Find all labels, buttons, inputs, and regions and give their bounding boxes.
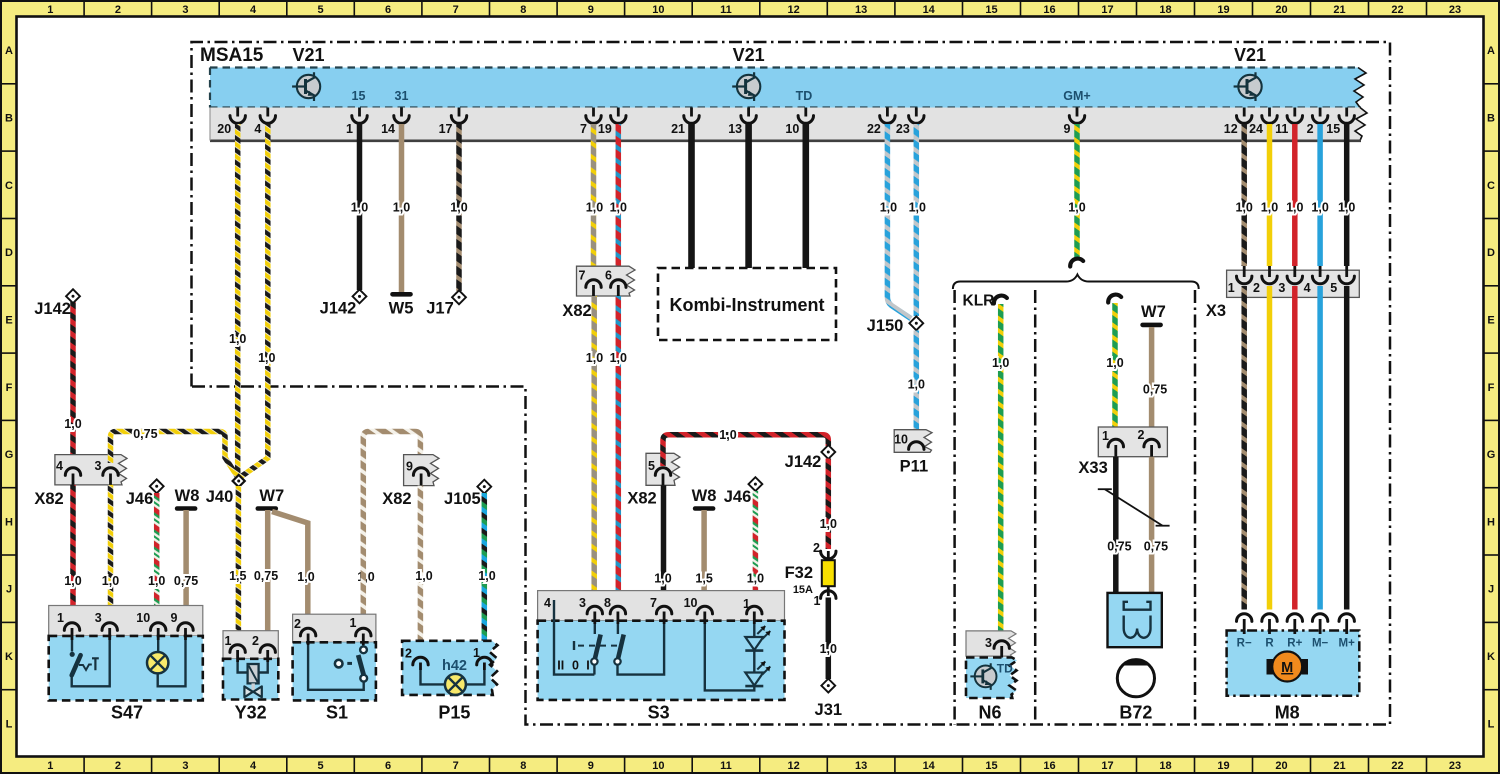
svg-text:J142: J142 xyxy=(785,453,822,471)
svg-text:18: 18 xyxy=(1159,4,1171,16)
svg-text:10: 10 xyxy=(652,760,664,772)
svg-text:16: 16 xyxy=(1043,760,1055,772)
svg-text:14: 14 xyxy=(381,122,395,136)
svg-text:X82: X82 xyxy=(627,490,656,508)
svg-text:1,0: 1,0 xyxy=(1236,201,1253,215)
svg-text:J: J xyxy=(6,584,12,596)
svg-text:TD: TD xyxy=(796,89,813,103)
svg-text:13: 13 xyxy=(855,760,867,772)
svg-text:B: B xyxy=(1487,113,1495,125)
svg-text:S47: S47 xyxy=(111,703,143,723)
svg-text:5: 5 xyxy=(318,760,324,772)
svg-text:J46: J46 xyxy=(724,488,752,506)
svg-text:1: 1 xyxy=(47,4,53,16)
svg-text:22: 22 xyxy=(1391,4,1403,16)
svg-text:J142: J142 xyxy=(320,300,357,318)
svg-text:MSA15: MSA15 xyxy=(200,45,264,66)
svg-text:11: 11 xyxy=(720,4,732,16)
svg-text:20: 20 xyxy=(1275,760,1287,772)
svg-text:1,0: 1,0 xyxy=(1311,201,1328,215)
svg-text:J142: J142 xyxy=(34,300,71,318)
svg-text:W8: W8 xyxy=(692,487,717,505)
svg-text:S3: S3 xyxy=(648,703,670,723)
svg-text:V21: V21 xyxy=(733,45,765,65)
svg-text:R: R xyxy=(1265,638,1274,650)
svg-text:5: 5 xyxy=(1330,281,1337,295)
svg-text:1,0: 1,0 xyxy=(880,201,897,215)
svg-text:10: 10 xyxy=(684,596,698,610)
svg-text:18: 18 xyxy=(1159,760,1171,772)
svg-text:C: C xyxy=(5,180,13,192)
svg-text:B72: B72 xyxy=(1119,703,1152,723)
svg-text:1,0: 1,0 xyxy=(586,351,603,365)
svg-text:1: 1 xyxy=(346,122,353,136)
svg-text:23: 23 xyxy=(896,122,910,136)
svg-text:B: B xyxy=(5,113,13,125)
svg-text:1: 1 xyxy=(350,616,357,630)
svg-text:J46: J46 xyxy=(126,490,154,508)
svg-text:h42: h42 xyxy=(442,658,467,674)
svg-text:I: I xyxy=(586,659,589,673)
svg-text:1,0: 1,0 xyxy=(1286,201,1303,215)
svg-text:P11: P11 xyxy=(900,458,928,476)
svg-text:W8: W8 xyxy=(175,487,200,505)
svg-text:19: 19 xyxy=(1217,760,1229,772)
svg-text:8: 8 xyxy=(520,4,526,16)
svg-text:3: 3 xyxy=(985,636,992,650)
svg-text:1: 1 xyxy=(57,611,64,625)
svg-text:12: 12 xyxy=(787,4,799,16)
svg-text:1,0: 1,0 xyxy=(229,332,246,346)
svg-text:1,0: 1,0 xyxy=(393,201,410,215)
svg-text:7: 7 xyxy=(453,760,459,772)
svg-text:0,75: 0,75 xyxy=(1107,540,1131,554)
svg-text:9: 9 xyxy=(588,4,594,16)
svg-text:7: 7 xyxy=(579,269,586,283)
svg-text:19: 19 xyxy=(1217,4,1229,16)
svg-text:1,0: 1,0 xyxy=(820,642,837,656)
svg-text:0,75: 0,75 xyxy=(1144,540,1168,554)
svg-text:4: 4 xyxy=(250,760,257,772)
svg-text:X3: X3 xyxy=(1206,302,1226,320)
svg-text:W5: W5 xyxy=(389,300,414,318)
svg-text:2: 2 xyxy=(813,541,820,555)
svg-text:1,0: 1,0 xyxy=(992,356,1009,370)
svg-text:10: 10 xyxy=(894,433,908,447)
svg-text:4: 4 xyxy=(1304,281,1311,295)
svg-text:3: 3 xyxy=(1278,281,1285,295)
svg-text:14: 14 xyxy=(923,760,936,772)
svg-text:E: E xyxy=(5,314,12,326)
svg-text:15: 15 xyxy=(985,4,997,16)
svg-text:17: 17 xyxy=(439,122,453,136)
svg-text:3: 3 xyxy=(579,596,586,610)
svg-text:0,75: 0,75 xyxy=(133,427,157,441)
svg-text:2: 2 xyxy=(294,617,301,631)
svg-text:9: 9 xyxy=(1064,122,1071,136)
svg-text:9: 9 xyxy=(171,611,178,625)
svg-text:3: 3 xyxy=(182,760,188,772)
svg-text:14: 14 xyxy=(923,4,936,16)
svg-text:W7: W7 xyxy=(259,487,284,505)
svg-text:22: 22 xyxy=(867,122,881,136)
svg-text:D: D xyxy=(5,247,13,259)
svg-text:23: 23 xyxy=(1449,4,1461,16)
svg-text:17: 17 xyxy=(1101,760,1113,772)
svg-text:19: 19 xyxy=(598,122,612,136)
svg-text:0,75: 0,75 xyxy=(254,569,278,583)
svg-text:15: 15 xyxy=(1326,122,1340,136)
svg-text:22: 22 xyxy=(1391,760,1403,772)
svg-text:4: 4 xyxy=(544,596,551,610)
svg-text:KLR: KLR xyxy=(963,293,995,310)
svg-text:X33: X33 xyxy=(1078,459,1107,477)
svg-text:F: F xyxy=(1488,382,1495,394)
svg-text:21: 21 xyxy=(1333,4,1345,16)
svg-text:11: 11 xyxy=(1275,122,1288,136)
svg-text:7: 7 xyxy=(580,122,587,136)
svg-text:J17: J17 xyxy=(426,300,454,318)
svg-text:L: L xyxy=(1488,718,1495,730)
svg-text:1,0: 1,0 xyxy=(610,201,627,215)
svg-text:0: 0 xyxy=(572,659,579,673)
svg-text:1: 1 xyxy=(743,597,750,611)
svg-text:1,0: 1,0 xyxy=(415,569,432,583)
svg-text:K: K xyxy=(1487,651,1495,663)
svg-text:21: 21 xyxy=(1333,760,1345,772)
svg-text:2: 2 xyxy=(252,634,259,648)
svg-text:J105: J105 xyxy=(444,490,481,508)
svg-text:1,0: 1,0 xyxy=(1338,201,1355,215)
svg-text:V21: V21 xyxy=(292,45,324,65)
svg-text:1,0: 1,0 xyxy=(102,574,119,588)
svg-text:15A: 15A xyxy=(793,584,813,596)
svg-text:10: 10 xyxy=(136,611,150,625)
svg-text:23: 23 xyxy=(1449,760,1461,772)
svg-text:1,0: 1,0 xyxy=(1106,356,1123,370)
svg-text:20: 20 xyxy=(1275,4,1287,16)
svg-text:1,0: 1,0 xyxy=(64,417,81,431)
svg-text:A: A xyxy=(1487,45,1495,57)
svg-text:1,0: 1,0 xyxy=(478,569,495,583)
svg-text:31: 31 xyxy=(395,89,409,103)
svg-text:9: 9 xyxy=(588,760,594,772)
svg-text:1,0: 1,0 xyxy=(909,201,926,215)
svg-text:J31: J31 xyxy=(815,701,843,719)
svg-text:1,0: 1,0 xyxy=(1261,201,1278,215)
svg-text:H: H xyxy=(5,516,13,528)
svg-text:D: D xyxy=(1487,247,1495,259)
svg-text:20: 20 xyxy=(217,122,231,136)
svg-text:R−: R− xyxy=(1237,638,1252,650)
svg-text:2: 2 xyxy=(115,760,121,772)
svg-text:1,0: 1,0 xyxy=(1068,201,1085,215)
svg-text:2: 2 xyxy=(115,4,121,16)
svg-text:11: 11 xyxy=(720,760,732,772)
svg-text:6: 6 xyxy=(605,269,612,283)
svg-text:E: E xyxy=(1487,314,1494,326)
svg-text:9: 9 xyxy=(406,460,413,474)
svg-text:13: 13 xyxy=(855,4,867,16)
svg-text:Y32: Y32 xyxy=(235,703,267,723)
svg-text:F: F xyxy=(6,382,13,394)
svg-text:1,0: 1,0 xyxy=(450,201,467,215)
svg-text:0,75: 0,75 xyxy=(1143,383,1167,397)
svg-text:P15: P15 xyxy=(438,703,470,723)
svg-text:4: 4 xyxy=(254,122,261,136)
svg-text:3: 3 xyxy=(182,4,188,16)
svg-text:2: 2 xyxy=(1307,122,1314,136)
svg-text:13: 13 xyxy=(728,122,742,136)
svg-text:1,0: 1,0 xyxy=(820,517,837,531)
svg-text:1: 1 xyxy=(1228,281,1235,295)
svg-text:W7: W7 xyxy=(1141,303,1166,321)
svg-text:X82: X82 xyxy=(562,302,591,320)
svg-text:8: 8 xyxy=(604,596,611,610)
svg-text:M+: M+ xyxy=(1339,638,1356,650)
svg-text:X82: X82 xyxy=(34,490,63,508)
svg-text:10: 10 xyxy=(652,4,664,16)
svg-text:1,0: 1,0 xyxy=(654,572,671,586)
svg-text:1,0: 1,0 xyxy=(258,351,275,365)
svg-text:6: 6 xyxy=(385,760,391,772)
svg-text:1: 1 xyxy=(225,634,232,648)
svg-text:X82: X82 xyxy=(382,490,411,508)
svg-text:4: 4 xyxy=(250,4,257,16)
svg-text:G: G xyxy=(1487,449,1496,461)
svg-text:1,5: 1,5 xyxy=(229,569,246,583)
svg-text:10: 10 xyxy=(785,122,799,136)
svg-text:1: 1 xyxy=(473,646,480,660)
svg-text:A: A xyxy=(5,45,13,57)
svg-text:TD: TD xyxy=(997,661,1013,675)
svg-text:M: M xyxy=(1281,660,1293,676)
svg-text:H: H xyxy=(1487,516,1495,528)
svg-text:R+: R+ xyxy=(1287,638,1302,650)
svg-text:8: 8 xyxy=(520,760,526,772)
svg-text:J: J xyxy=(1488,584,1494,596)
svg-text:Kombi-Instrument: Kombi-Instrument xyxy=(670,295,825,315)
svg-text:17: 17 xyxy=(1101,4,1113,16)
svg-text:3: 3 xyxy=(95,611,102,625)
svg-text:M8: M8 xyxy=(1275,703,1300,723)
svg-text:1,0: 1,0 xyxy=(908,378,925,392)
svg-text:15: 15 xyxy=(352,89,366,103)
svg-text:1,5: 1,5 xyxy=(695,572,712,586)
svg-text:2: 2 xyxy=(1138,428,1145,442)
svg-text:L: L xyxy=(6,718,13,730)
svg-text:24: 24 xyxy=(1249,122,1263,136)
svg-text:S1: S1 xyxy=(326,703,348,723)
svg-text:G: G xyxy=(5,449,14,461)
svg-text:12: 12 xyxy=(787,760,799,772)
svg-text:1,0: 1,0 xyxy=(610,351,627,365)
svg-text:1,0: 1,0 xyxy=(351,201,368,215)
svg-text:GM+: GM+ xyxy=(1063,89,1090,103)
svg-text:J150: J150 xyxy=(867,317,904,335)
svg-text:C: C xyxy=(1487,180,1495,192)
svg-text:3: 3 xyxy=(95,459,102,473)
svg-text:7: 7 xyxy=(650,596,657,610)
svg-text:12: 12 xyxy=(1224,122,1238,136)
svg-text:7: 7 xyxy=(453,4,459,16)
svg-text:2: 2 xyxy=(405,647,412,661)
svg-text:1,0: 1,0 xyxy=(297,570,314,584)
svg-text:II: II xyxy=(557,659,564,673)
svg-text:1: 1 xyxy=(47,760,53,772)
svg-text:1,0: 1,0 xyxy=(586,201,603,215)
svg-text:M−: M− xyxy=(1312,638,1329,650)
svg-text:1,0: 1,0 xyxy=(148,574,165,588)
svg-text:1: 1 xyxy=(814,594,821,608)
svg-text:2: 2 xyxy=(1253,281,1260,295)
svg-text:15: 15 xyxy=(985,760,997,772)
svg-text:0,75: 0,75 xyxy=(174,574,198,588)
svg-text:J40: J40 xyxy=(206,488,234,506)
svg-text:5: 5 xyxy=(648,459,655,473)
svg-text:6: 6 xyxy=(385,4,391,16)
svg-text:1: 1 xyxy=(1102,429,1109,443)
svg-text:K: K xyxy=(5,651,13,663)
svg-text:1,0: 1,0 xyxy=(719,428,736,442)
svg-text:F32: F32 xyxy=(785,564,813,582)
svg-text:V21: V21 xyxy=(1234,45,1266,65)
svg-text:16: 16 xyxy=(1043,4,1055,16)
svg-text:1,0: 1,0 xyxy=(747,572,764,586)
svg-text:N6: N6 xyxy=(978,703,1001,723)
svg-text:1,0: 1,0 xyxy=(64,574,81,588)
svg-text:4: 4 xyxy=(56,459,63,473)
svg-text:21: 21 xyxy=(671,122,685,136)
svg-text:5: 5 xyxy=(318,4,324,16)
